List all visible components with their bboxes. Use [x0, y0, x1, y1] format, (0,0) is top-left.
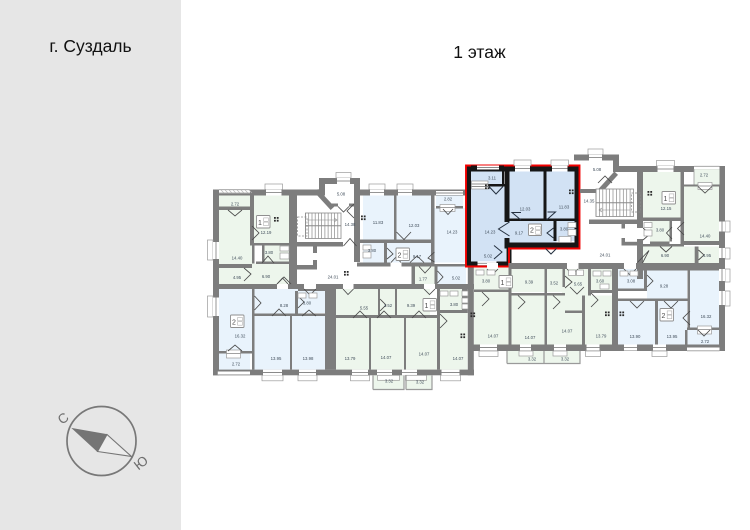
svg-text:14.07: 14.07: [453, 356, 464, 361]
svg-text:4.95: 4.95: [233, 275, 242, 280]
svg-text:16.32: 16.32: [235, 334, 246, 339]
svg-text:3.08: 3.08: [627, 279, 636, 284]
svg-text:14.07: 14.07: [525, 335, 536, 340]
svg-text:14.07: 14.07: [381, 355, 392, 360]
svg-text:13.98: 13.98: [303, 356, 314, 361]
svg-text:24.01: 24.01: [328, 275, 339, 280]
svg-text:13.95: 13.95: [667, 334, 678, 339]
svg-text:2.72: 2.72: [232, 362, 241, 367]
svg-text:2: 2: [661, 313, 665, 320]
svg-text:13.90: 13.90: [630, 334, 641, 339]
svg-text:24.01: 24.01: [600, 253, 611, 258]
svg-text:3.60: 3.60: [596, 279, 605, 284]
svg-text:3.80: 3.80: [656, 228, 665, 233]
svg-text:16.32: 16.32: [701, 314, 712, 319]
svg-text:14.07: 14.07: [419, 352, 430, 357]
svg-text:2.82: 2.82: [444, 197, 453, 202]
svg-text:3.32: 3.32: [528, 357, 537, 362]
svg-text:3.80: 3.80: [303, 301, 312, 306]
svg-text:13.79: 13.79: [345, 356, 356, 361]
svg-text:1: 1: [500, 280, 504, 287]
svg-text:9.17: 9.17: [413, 254, 422, 259]
svg-text:1: 1: [258, 220, 262, 227]
svg-text:3.11: 3.11: [488, 176, 497, 181]
svg-text:8.28: 8.28: [280, 303, 289, 308]
svg-text:13.79: 13.79: [596, 334, 607, 339]
svg-text:12.19: 12.19: [261, 230, 272, 235]
svg-text:3.80: 3.80: [450, 302, 459, 307]
svg-text:6.90: 6.90: [661, 253, 670, 258]
svg-text:2: 2: [232, 319, 236, 326]
svg-text:3.80: 3.80: [265, 250, 274, 255]
svg-text:5.02: 5.02: [452, 276, 461, 281]
svg-text:11.83: 11.83: [559, 205, 570, 210]
svg-text:2.72: 2.72: [700, 173, 709, 178]
svg-text:14.07: 14.07: [562, 329, 573, 334]
svg-text:1.77: 1.77: [419, 277, 428, 282]
svg-text:5.08: 5.08: [337, 192, 346, 197]
svg-text:12.15: 12.15: [661, 206, 672, 211]
svg-text:3.52: 3.52: [384, 303, 393, 308]
svg-text:13.95: 13.95: [271, 356, 282, 361]
svg-text:14.23: 14.23: [447, 230, 458, 235]
svg-text:4.95: 4.95: [703, 253, 712, 258]
svg-text:5.02: 5.02: [484, 254, 493, 259]
svg-text:12.03: 12.03: [409, 223, 420, 228]
svg-text:14.07: 14.07: [488, 334, 499, 339]
svg-text:2: 2: [397, 252, 401, 259]
svg-text:11.83: 11.83: [373, 220, 384, 225]
svg-text:5.65: 5.65: [574, 282, 583, 287]
svg-text:6.90: 6.90: [262, 274, 271, 279]
svg-text:9.39: 9.39: [525, 280, 534, 285]
svg-text:5.55: 5.55: [360, 306, 369, 311]
svg-text:3.32: 3.32: [561, 357, 570, 362]
svg-text:1: 1: [663, 196, 667, 203]
svg-text:5.08: 5.08: [593, 167, 602, 172]
svg-text:2.72: 2.72: [231, 202, 240, 207]
svg-text:3.80: 3.80: [368, 248, 377, 253]
svg-text:9.28: 9.28: [660, 284, 669, 289]
svg-text:14.38: 14.38: [345, 222, 356, 227]
svg-text:9.39: 9.39: [407, 303, 416, 308]
svg-text:9.17: 9.17: [515, 231, 524, 236]
svg-text:3.32: 3.32: [416, 380, 425, 385]
svg-text:1: 1: [424, 303, 428, 310]
svg-text:2: 2: [530, 227, 534, 234]
svg-text:14.35: 14.35: [584, 199, 595, 204]
svg-text:3.80: 3.80: [560, 227, 569, 232]
svg-text:3.80: 3.80: [482, 279, 491, 284]
svg-text:2.72: 2.72: [701, 339, 710, 344]
svg-text:14.40: 14.40: [232, 256, 243, 261]
svg-text:3.52: 3.52: [550, 281, 559, 286]
svg-text:14.23: 14.23: [485, 230, 496, 235]
svg-text:3.32: 3.32: [385, 379, 394, 384]
svg-text:12.03: 12.03: [520, 207, 531, 212]
svg-text:14.40: 14.40: [700, 234, 711, 239]
